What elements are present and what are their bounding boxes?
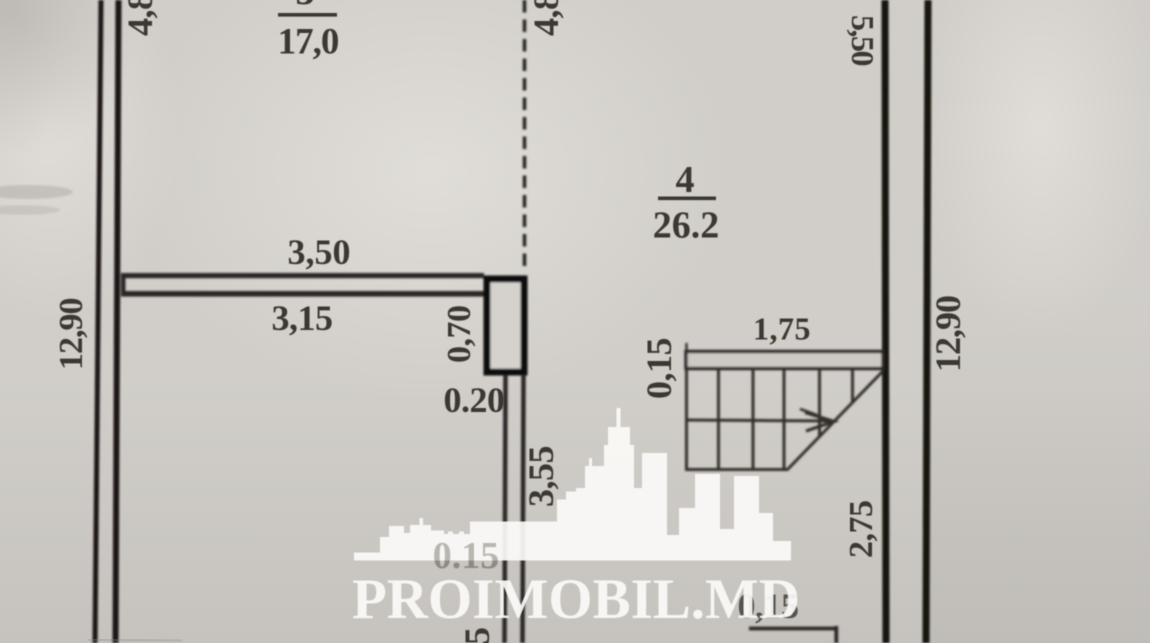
svg-text:1,75: 1,75 (753, 311, 811, 347)
svg-text:4: 4 (676, 159, 695, 201)
svg-text:0.20: 0.20 (444, 380, 505, 420)
svg-text:PROIMOBIL.MD: PROIMOBIL.MD (352, 568, 800, 631)
svg-text:0,15: 0,15 (639, 338, 679, 399)
svg-text:3: 3 (296, 0, 315, 13)
svg-text:3,50: 3,50 (288, 232, 351, 272)
svg-text:4,85: 4,85 (120, 0, 160, 36)
svg-text:3,55: 3,55 (521, 446, 561, 507)
svg-text:3,15: 3,15 (272, 298, 333, 338)
svg-text:12,90: 12,90 (53, 299, 90, 371)
svg-text:12,90: 12,90 (928, 296, 968, 372)
svg-text:26.2: 26.2 (653, 205, 720, 247)
svg-text:17,0: 17,0 (278, 22, 339, 63)
svg-text:4,85: 4,85 (526, 0, 566, 36)
svg-text:0,70: 0,70 (441, 306, 478, 364)
svg-text:2,75: 2,75 (843, 501, 880, 559)
svg-text:5,50: 5,50 (845, 15, 881, 66)
